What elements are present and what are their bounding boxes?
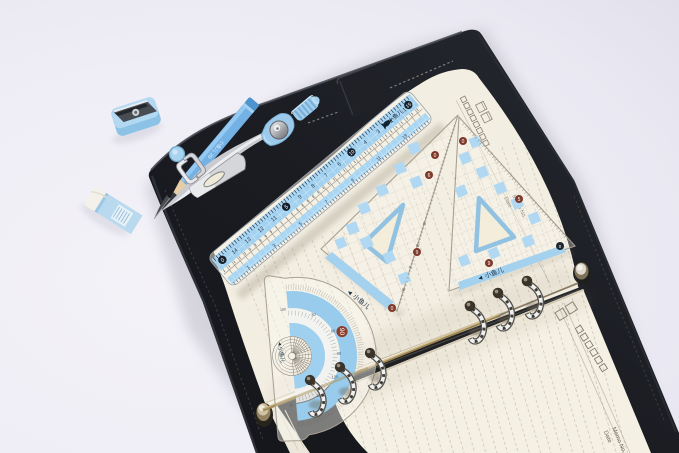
svg-text:0: 0 bbox=[290, 403, 292, 407]
svg-text:90: 90 bbox=[338, 328, 345, 336]
svg-text:180: 180 bbox=[280, 307, 286, 311]
svg-text:0: 0 bbox=[391, 306, 394, 312]
svg-text:0: 0 bbox=[434, 153, 437, 159]
svg-text:6: 6 bbox=[428, 173, 431, 179]
svg-text:0: 0 bbox=[462, 139, 465, 145]
svg-text:5: 5 bbox=[518, 197, 521, 203]
svg-text:9: 9 bbox=[488, 261, 491, 267]
